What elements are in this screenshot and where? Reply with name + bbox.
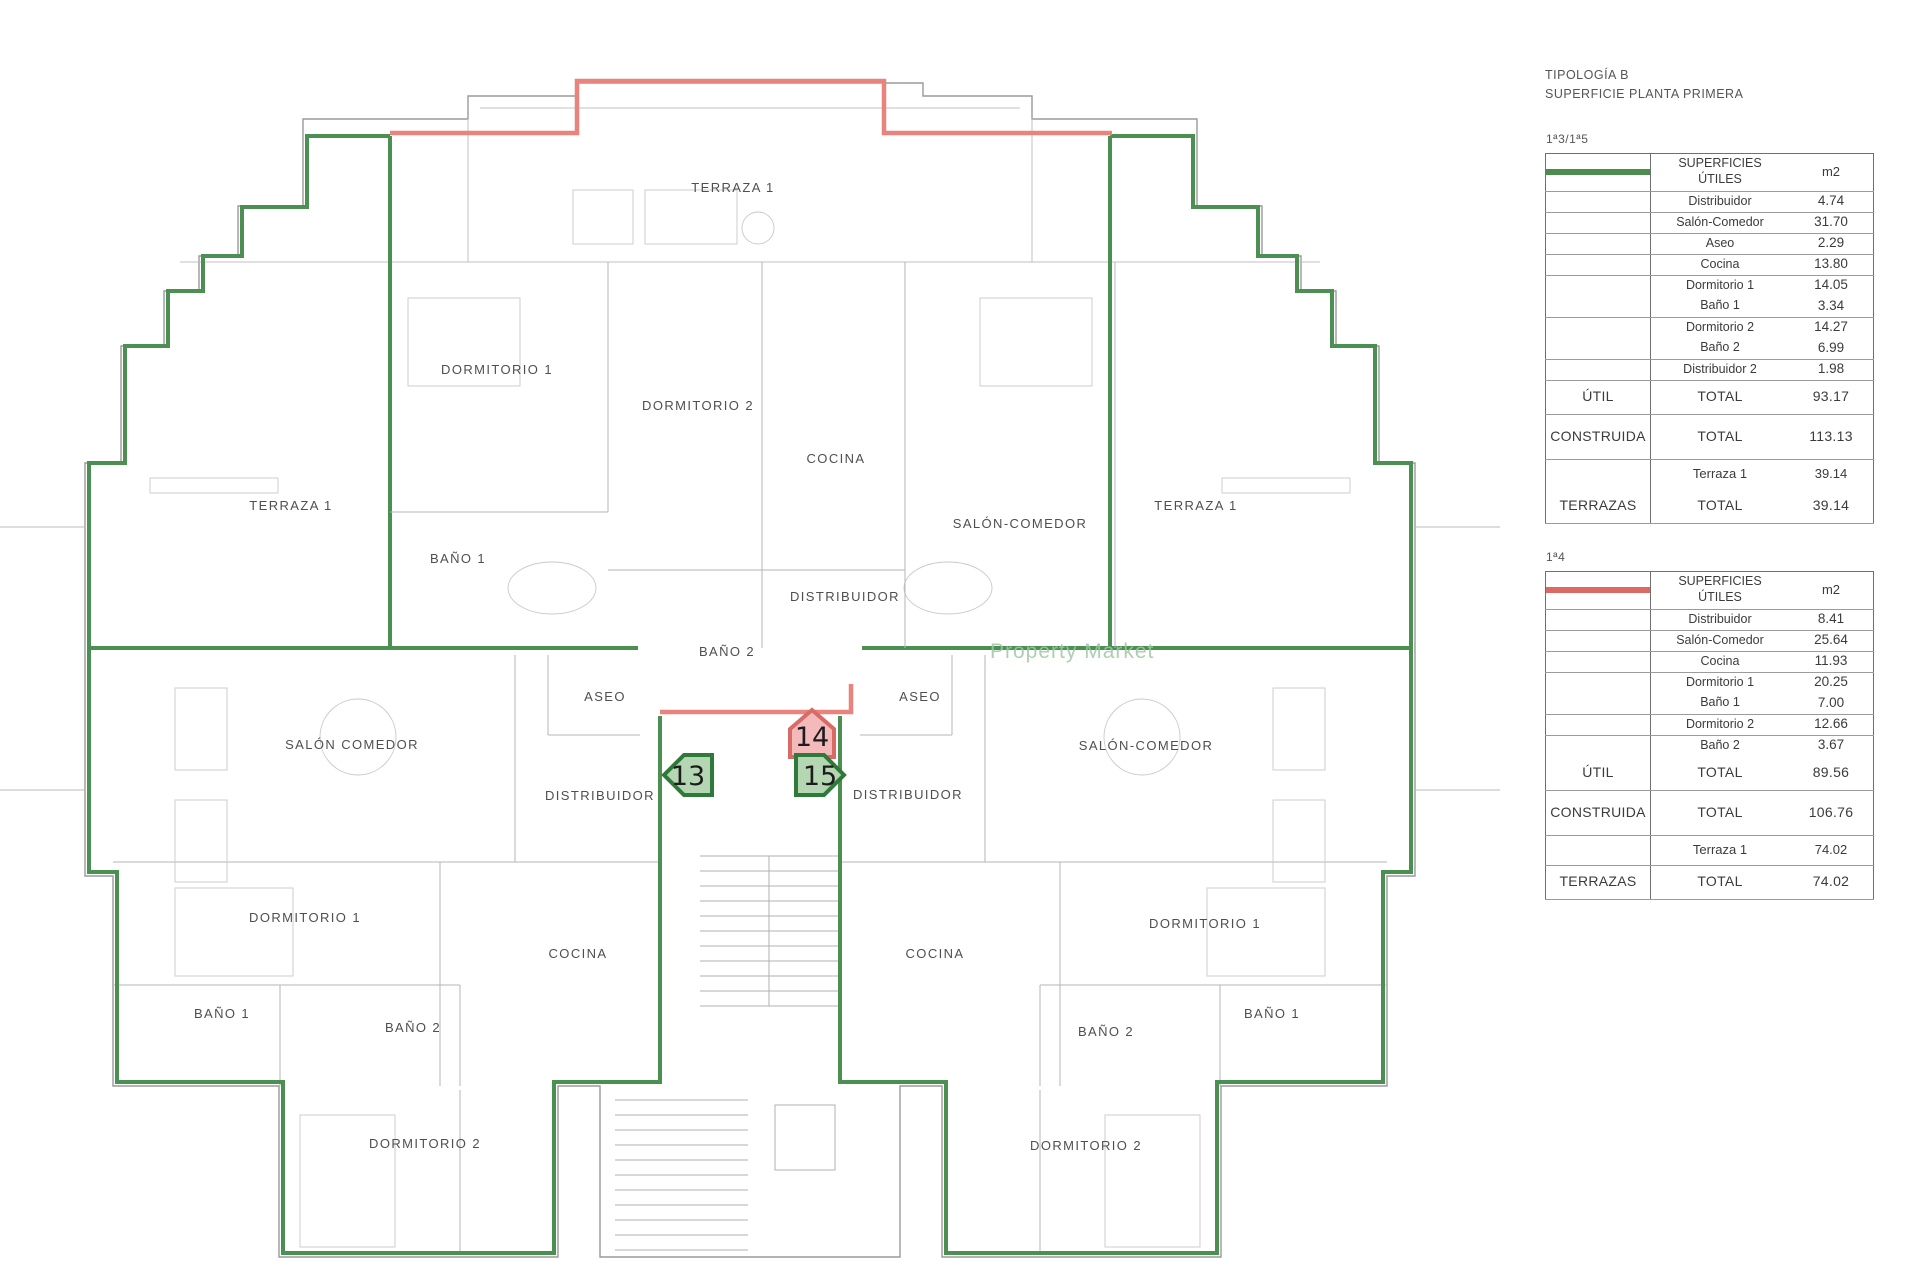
table-row: Baño 17.00 [1546, 693, 1874, 714]
row-category: CONSTRUIDA [1546, 790, 1651, 835]
area-tables: 1ª3/1ª5SUPERFICIESÚTILESm2Distribuidor4.… [1545, 132, 1865, 900]
table-row: Dormitorio 214.27 [1546, 317, 1874, 338]
row-category [1546, 835, 1651, 865]
row-value: 14.27 [1789, 317, 1874, 338]
row-category [1546, 275, 1651, 296]
row-value: 93.17 [1789, 380, 1874, 414]
row-name: Baño 1 [1651, 296, 1790, 317]
row-name: Baño 1 [1651, 693, 1790, 714]
room-label: DORMITORIO 1 [249, 910, 361, 925]
unit-boundary-red [390, 81, 1112, 712]
row-name: Terraza 1 [1651, 459, 1790, 489]
panel-title: TIPOLOGÍA B SUPERFICIE PLANTA PRIMERA [1545, 66, 1865, 104]
floor-title: SUPERFICIE PLANTA PRIMERA [1545, 85, 1865, 104]
table-row: Salón-Comedor25.64 [1546, 630, 1874, 651]
row-category [1546, 672, 1651, 693]
table-row: Distribuidor4.74 [1546, 191, 1874, 212]
row-category [1546, 693, 1651, 714]
row-name: TOTAL [1651, 865, 1790, 899]
row-name: Salón-Comedor [1651, 630, 1790, 651]
apartment-badge-14: 14 [790, 710, 834, 757]
row-value: 14.05 [1789, 275, 1874, 296]
table-row: Dormitorio 120.25 [1546, 672, 1874, 693]
apartment-badge-13: 13 [664, 755, 712, 795]
table-row: Salón-Comedor31.70 [1546, 212, 1874, 233]
table-header-row: SUPERFICIESÚTILESm2 [1546, 153, 1874, 191]
table-row: Terraza 174.02 [1546, 835, 1874, 865]
row-name: Terraza 1 [1651, 835, 1790, 865]
room-label: BAÑO 1 [430, 551, 486, 566]
table-header-row: SUPERFICIESÚTILESm2 [1546, 571, 1874, 609]
row-name: TOTAL [1651, 756, 1790, 790]
row-value: 74.02 [1789, 835, 1874, 865]
badge-number: 13 [671, 761, 705, 792]
room-label: BAÑO 2 [1078, 1024, 1134, 1039]
room-label: DORMITORIO 2 [369, 1136, 481, 1151]
room-label: ASEO [584, 689, 626, 704]
row-name: Cocina [1651, 254, 1790, 275]
row-category: ÚTIL [1546, 756, 1651, 790]
row-category: TERRAZAS [1546, 865, 1651, 899]
room-label: DORMITORIO 1 [1149, 916, 1261, 931]
table-row: Baño 23.67 [1546, 735, 1874, 756]
room-label: DORMITORIO 2 [1030, 1138, 1142, 1153]
row-name: Cocina [1651, 651, 1790, 672]
row-name: TOTAL [1651, 380, 1790, 414]
unit-label: 1ª4 [1546, 550, 1865, 564]
red-legend-swatch [1546, 587, 1650, 593]
row-category [1546, 735, 1651, 756]
room-label: SALÓN-COMEDOR [1079, 738, 1214, 753]
room-label: BAÑO 2 [699, 644, 755, 659]
row-value: 20.25 [1789, 672, 1874, 693]
table-row: TERRAZASTOTAL74.02 [1546, 865, 1874, 899]
table-row: Aseo2.29 [1546, 233, 1874, 254]
row-category [1546, 254, 1651, 275]
row-value: 39.14 [1789, 459, 1874, 489]
floor-plan: TERRAZA 1DORMITORIO 1DORMITORIO 2COCINAS… [0, 0, 1500, 1280]
upper-room-walls [390, 262, 1115, 648]
green-legend-swatch [1546, 169, 1650, 175]
row-name: Dormitorio 1 [1651, 275, 1790, 296]
row-value: 2.29 [1789, 233, 1874, 254]
table-row: CONSTRUIDATOTAL106.76 [1546, 790, 1874, 835]
row-category: TERRAZAS [1546, 489, 1651, 523]
table-row: Distribuidor8.41 [1546, 609, 1874, 630]
row-value: 13.80 [1789, 254, 1874, 275]
room-label: SALÓN-COMEDOR [953, 516, 1088, 531]
row-value: 6.99 [1789, 338, 1874, 359]
floor-plan-drawing: TERRAZA 1DORMITORIO 1DORMITORIO 2COCINAS… [0, 0, 1500, 1280]
table-row: Dormitorio 114.05 [1546, 275, 1874, 296]
row-value: 31.70 [1789, 212, 1874, 233]
table-row: ÚTILTOTAL93.17 [1546, 380, 1874, 414]
row-category [1546, 296, 1651, 317]
row-value: 3.34 [1789, 296, 1874, 317]
table-row: Distribuidor 21.98 [1546, 359, 1874, 380]
row-name: TOTAL [1651, 489, 1790, 523]
room-label: BAÑO 1 [1244, 1006, 1300, 1021]
row-name: Distribuidor [1651, 191, 1790, 212]
typology-title: TIPOLOGÍA B [1545, 66, 1865, 85]
table-row: TERRAZASTOTAL39.14 [1546, 489, 1874, 523]
room-label: DISTRIBUIDOR [790, 589, 900, 604]
row-value: 11.93 [1789, 651, 1874, 672]
row-category [1546, 714, 1651, 735]
row-category [1546, 651, 1651, 672]
row-name: Dormitorio 2 [1651, 714, 1790, 735]
row-name: Salón-Comedor [1651, 212, 1790, 233]
table-row: ÚTILTOTAL89.56 [1546, 756, 1874, 790]
room-label: SALÓN COMEDOR [285, 737, 419, 752]
row-name: Distribuidor [1651, 609, 1790, 630]
row-category: ÚTIL [1546, 380, 1651, 414]
table-row: Cocina11.93 [1546, 651, 1874, 672]
room-label: COCINA [906, 946, 965, 961]
row-value: 1.98 [1789, 359, 1874, 380]
m2-header: m2 [1789, 571, 1874, 609]
superficies-table: SUPERFICIESÚTILESm2Distribuidor4.74Salón… [1545, 153, 1874, 524]
row-category [1546, 338, 1651, 359]
table-row: Cocina13.80 [1546, 254, 1874, 275]
row-category [1546, 317, 1651, 338]
row-category: CONSTRUIDA [1546, 414, 1651, 459]
lift-shaft [775, 1105, 835, 1170]
row-value: 89.56 [1789, 756, 1874, 790]
row-value: 8.41 [1789, 609, 1874, 630]
superficies-utiles-header: SUPERFICIESÚTILES [1651, 153, 1790, 191]
badge-number: 14 [795, 722, 829, 753]
row-name: Baño 2 [1651, 338, 1790, 359]
apartment-badge-15: 15 [796, 755, 844, 795]
m2-header: m2 [1789, 153, 1874, 191]
room-label: COCINA [807, 451, 866, 466]
row-name: Distribuidor 2 [1651, 359, 1790, 380]
row-category [1546, 233, 1651, 254]
row-category [1546, 212, 1651, 233]
row-name: TOTAL [1651, 790, 1790, 835]
row-category [1546, 459, 1651, 489]
room-label: DORMITORIO 1 [441, 362, 553, 377]
room-label: DISTRIBUIDOR [545, 788, 655, 803]
row-name: Baño 2 [1651, 735, 1790, 756]
staircase [615, 856, 838, 1250]
row-value: 113.13 [1789, 414, 1874, 459]
room-label: DISTRIBUIDOR [853, 787, 963, 802]
row-value: 106.76 [1789, 790, 1874, 835]
room-label: TERRAZA 1 [1154, 498, 1237, 513]
table-row: Terraza 139.14 [1546, 459, 1874, 489]
row-category [1546, 359, 1651, 380]
row-name: Aseo [1651, 233, 1790, 254]
row-value: 74.02 [1789, 865, 1874, 899]
row-value: 25.64 [1789, 630, 1874, 651]
row-value: 12.66 [1789, 714, 1874, 735]
badge-number: 15 [803, 761, 837, 792]
room-label: BAÑO 1 [194, 1006, 250, 1021]
row-name: Dormitorio 2 [1651, 317, 1790, 338]
page: { "panel": { "title_line1": "TIPOLOGÍA B… [0, 0, 1920, 1280]
superficies-table: SUPERFICIESÚTILESm2Distribuidor8.41Salón… [1545, 571, 1874, 900]
row-value: 39.14 [1789, 489, 1874, 523]
row-category [1546, 609, 1651, 630]
terrace-furniture [573, 190, 774, 244]
table-row: Baño 26.99 [1546, 338, 1874, 359]
room-label: TERRAZA 1 [691, 180, 774, 195]
summary-panel: TIPOLOGÍA B SUPERFICIE PLANTA PRIMERA 1ª… [1545, 66, 1865, 900]
row-name: TOTAL [1651, 414, 1790, 459]
room-label: BAÑO 2 [385, 1020, 441, 1035]
room-label: COCINA [549, 946, 608, 961]
room-label: ASEO [899, 689, 941, 704]
row-value: 3.67 [1789, 735, 1874, 756]
superficies-utiles-header: SUPERFICIESÚTILES [1651, 571, 1790, 609]
table-row: Dormitorio 212.66 [1546, 714, 1874, 735]
row-value: 4.74 [1789, 191, 1874, 212]
room-label: TERRAZA 1 [249, 498, 332, 513]
unit-label: 1ª3/1ª5 [1546, 132, 1865, 146]
row-value: 7.00 [1789, 693, 1874, 714]
table-row: CONSTRUIDATOTAL113.13 [1546, 414, 1874, 459]
row-category [1546, 630, 1651, 651]
watermark: Property Market [990, 640, 1154, 663]
room-label: DORMITORIO 2 [642, 398, 754, 413]
row-category [1546, 191, 1651, 212]
table-row: Baño 13.34 [1546, 296, 1874, 317]
row-name: Dormitorio 1 [1651, 672, 1790, 693]
